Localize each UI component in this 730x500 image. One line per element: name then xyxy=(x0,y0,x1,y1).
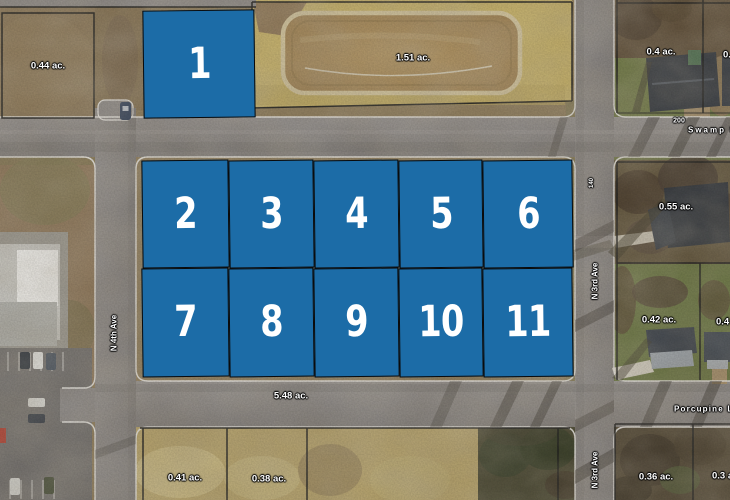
lot-number: 7 xyxy=(174,301,197,344)
lot-overlay-5[interactable]: 5 xyxy=(398,159,483,268)
lot-overlay-9[interactable]: 9 xyxy=(313,267,399,377)
lot-number: 1 xyxy=(187,42,210,85)
lot-number: 5 xyxy=(429,192,452,235)
lot-overlay-10[interactable]: 10 xyxy=(398,267,483,377)
lot-number: 9 xyxy=(345,301,368,344)
lot-number: 10 xyxy=(418,301,464,345)
lot-overlay-8[interactable]: 8 xyxy=(228,267,314,377)
lot-number: 11 xyxy=(505,301,551,345)
lot-number: 3 xyxy=(260,192,283,235)
lot-overlay-7[interactable]: 7 xyxy=(141,267,229,377)
lot-overlay-11[interactable]: 11 xyxy=(482,267,573,377)
lot-overlay-2[interactable]: 2 xyxy=(141,159,229,268)
lot-overlay-4[interactable]: 4 xyxy=(313,159,399,268)
lot-overlay-6[interactable]: 6 xyxy=(482,159,573,268)
lot-number: 4 xyxy=(345,192,368,235)
lot-number: 8 xyxy=(260,301,283,344)
lot-overlay-3[interactable]: 3 xyxy=(228,159,314,268)
lot-number: 6 xyxy=(516,192,539,235)
lot-number: 2 xyxy=(174,192,197,235)
plat-map: 1234567891011 0.44 ac.1.51 ac.0.4 ac.0.5… xyxy=(0,0,730,500)
lot-overlay-1[interactable]: 1 xyxy=(142,9,255,118)
